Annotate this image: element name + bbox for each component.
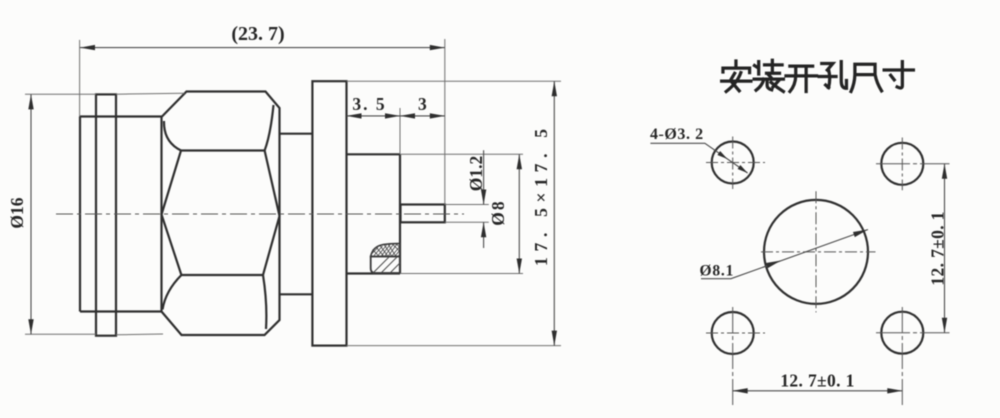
svg-text:17. 5×17. 5: 17. 5×17. 5	[531, 123, 551, 266]
svg-text:3: 3	[418, 94, 427, 114]
svg-text:Ø16: Ø16	[7, 197, 27, 228]
svg-text:Ø8: Ø8	[488, 199, 508, 225]
svg-text:12. 7±0. 1: 12. 7±0. 1	[780, 371, 854, 391]
svg-text:12. 7±0. 1: 12. 7±0. 1	[928, 211, 948, 285]
svg-text:(23. 7): (23. 7)	[231, 23, 284, 45]
svg-text:Ø8.1: Ø8.1	[700, 263, 735, 280]
svg-text:Ø1.2: Ø1.2	[466, 156, 486, 192]
svg-text:3. 5: 3. 5	[352, 94, 386, 114]
svg-text:4-Ø3. 2: 4-Ø3. 2	[650, 126, 704, 143]
